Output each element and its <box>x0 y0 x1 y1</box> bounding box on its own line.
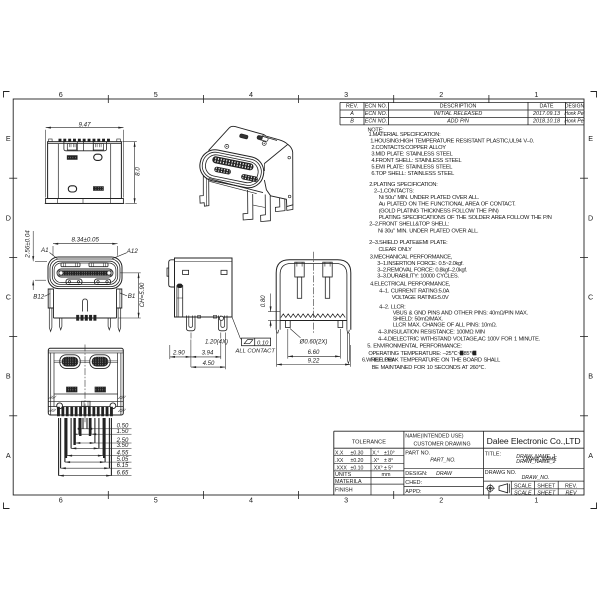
svg-text:5. ENVIRONMENTAL PERFORMANCE: 5. ENVIRONMENTAL PERFORMANCE: <box>367 344 462 350</box>
svg-text:3: 3 <box>344 90 348 99</box>
svg-text:A: A <box>588 451 593 460</box>
svg-text:ECN NO.: ECN NO. <box>365 119 387 125</box>
svg-text:B: B <box>350 119 354 125</box>
svg-text:DRAW_NAME_2: DRAW_NAME_2 <box>516 459 556 465</box>
svg-text:± 8°: ± 8° <box>384 458 393 464</box>
svg-text:.XX: .XX <box>335 458 344 464</box>
svg-text:1: 1 <box>534 496 538 505</box>
svg-text:E: E <box>588 134 593 143</box>
svg-text:INITIAL RELEASED: INITIAL RELEASED <box>434 111 483 117</box>
svg-text:SCALE: SCALE <box>514 483 532 489</box>
svg-text:3.MID PLATE: STAINLESS STEE: 3.MID PLATE: STAINLESS STEEL <box>371 151 452 157</box>
svg-text:4–4.DIELECTRIC WITHSTAND VOL: 4–4.DIELECTRIC WITHSTAND VOLTAGE,AC 100V… <box>378 336 541 342</box>
svg-text:Ni 30u" MIN. UNDER PLATED: Ni 30u" MIN. UNDER PLATED OVER ALL. <box>378 228 479 234</box>
svg-text:TOLERANCE: TOLERANCE <box>352 439 386 445</box>
svg-text:REFLOW: REFLOW <box>371 357 394 363</box>
svg-text:0.10: 0.10 <box>257 340 269 346</box>
svg-text:2–1.CONTACTS:: 2–1.CONTACTS: <box>374 188 414 194</box>
svg-text:X.°: X.° <box>372 450 379 456</box>
svg-text:.XX°: .XX° <box>372 466 382 472</box>
svg-text:C: C <box>6 293 11 302</box>
svg-text:1.MATERIAL SPECIFICATION:: 1.MATERIAL SPECIFICATION: <box>369 132 442 138</box>
svg-text:TITLE:: TITLE: <box>485 451 501 457</box>
svg-text:9.22: 9.22 <box>308 358 320 364</box>
svg-text:Honk Pei: Honk Pei <box>564 119 585 125</box>
svg-text:±0.10: ±0.10 <box>351 466 364 472</box>
svg-text:2: 2 <box>439 496 443 505</box>
svg-text:B1: B1 <box>128 293 136 300</box>
svg-text:DATE: DATE <box>540 104 554 110</box>
svg-text:3: 3 <box>344 496 348 505</box>
svg-text:5: 5 <box>154 90 158 99</box>
svg-text:CHED:: CHED: <box>405 480 422 486</box>
svg-text:UNITS: UNITS <box>335 472 352 478</box>
svg-text:SHEET: SHEET <box>537 483 556 489</box>
svg-text:A1: A1 <box>40 247 49 254</box>
svg-text:Ni 50u" MIN. UNDER PLATED: Ni 50u" MIN. UNDER PLATED OVER ALL. <box>379 195 480 201</box>
svg-text:SCALE: SCALE <box>514 490 532 496</box>
svg-text:B: B <box>588 372 593 381</box>
svg-text:4.ELECTRICAL PERFORMANCE,: 4.ELECTRICAL PERFORMANCE, <box>370 282 451 288</box>
svg-text:±10°: ±10° <box>384 450 395 456</box>
svg-text:3.MECHANICAL PERFORMANCE,: 3.MECHANICAL PERFORMANCE, <box>370 254 453 260</box>
svg-text:6: 6 <box>59 90 63 99</box>
svg-text:BE MAINTAINED FOR 10 SECON: BE MAINTAINED FOR 10 SECONDS AT 260℃. <box>372 365 487 371</box>
svg-text:2.PLATING SPECIFICATION:: 2.PLATING SPECIFICATION: <box>369 182 438 188</box>
svg-text:6.TOP SHELL: STAINLESS STEE: 6.TOP SHELL: STAINLESS STEEL <box>371 171 454 177</box>
svg-text:Honk Pei: Honk Pei <box>564 111 585 117</box>
svg-text:C: C <box>588 293 593 302</box>
svg-text:DESIGN:: DESIGN: <box>405 471 427 477</box>
svg-text:PLATING SPECIFICATIONS OF T: PLATING SPECIFICATIONS OF THE SOLDER ARE… <box>379 215 552 221</box>
svg-text:5.EMI PLATE: STAINLESS STEE: 5.EMI PLATE: STAINLESS STEEL <box>371 164 452 170</box>
svg-text:±0.20: ±0.20 <box>351 458 364 464</box>
svg-text:2.90: 2.90 <box>172 351 185 357</box>
svg-text:6.60: 6.60 <box>308 350 320 356</box>
svg-text:VBUS & GND PINS AND OTHER: VBUS & GND PINS AND OTHER PINS: 40mΩ/PIN… <box>393 311 529 317</box>
svg-text:REV.: REV. <box>346 104 358 110</box>
svg-text:2018.10.18: 2018.10.18 <box>532 119 560 125</box>
svg-text:DRAWG NO.: DRAWG NO. <box>485 470 517 476</box>
svg-text:X.X: X.X <box>335 450 344 456</box>
svg-text:4.50: 4.50 <box>203 361 215 367</box>
svg-text:9.47: 9.47 <box>78 121 91 128</box>
svg-text:Ø0.60(2X): Ø0.60(2X) <box>299 339 328 345</box>
svg-text:PART_NO.: PART_NO. <box>430 458 455 464</box>
svg-text:± 5°: ± 5° <box>384 466 393 472</box>
svg-text:CH=5.90: CH=5.90 <box>139 282 146 307</box>
svg-text:DESCRIPTION: DESCRIPTION <box>440 104 477 110</box>
svg-text:1: 1 <box>534 90 538 99</box>
svg-text:2.CONTACTS:COPPER ALLOY: 2.CONTACTS:COPPER ALLOY <box>371 145 446 151</box>
svg-text:ECN NO.: ECN NO. <box>365 111 387 117</box>
svg-text:DRAW: DRAW <box>436 471 453 477</box>
svg-text:1.20(4X): 1.20(4X) <box>205 339 228 345</box>
svg-text:PART NO.: PART NO. <box>405 451 430 457</box>
svg-text:CLEAR ONLY: CLEAR ONLY <box>379 247 413 253</box>
svg-text:4–2. LLCR:: 4–2. LLCR: <box>379 304 406 310</box>
svg-text:E: E <box>6 134 11 143</box>
svg-text:4–1. CURRENT RATING:5.0A: 4–1. CURRENT RATING:5.0A <box>379 288 450 294</box>
svg-text:0.80: 0.80 <box>261 295 267 307</box>
svg-text:DRAW_NO.: DRAW_NO. <box>522 475 550 481</box>
svg-text:2.56±0.04: 2.56±0.04 <box>24 230 31 259</box>
svg-text:VOLTAGE RATING:5.0V: VOLTAGE RATING:5.0V <box>392 295 449 301</box>
svg-text:2017.09.13: 2017.09.13 <box>532 111 560 117</box>
svg-text:4.FRONT SHELL: STAINLESS ST: 4.FRONT SHELL: STAINLESS STEEL <box>371 158 461 164</box>
svg-text:NAME(INTENDED USE): NAME(INTENDED USE) <box>405 433 464 439</box>
svg-text:A12: A12 <box>126 248 139 255</box>
svg-text:A: A <box>6 451 11 460</box>
svg-text:CUSTOMER DRAWING: CUSTOMER DRAWING <box>414 442 471 448</box>
svg-text:SHEET: SHEET <box>537 490 556 496</box>
svg-text:4: 4 <box>249 496 253 505</box>
svg-text:FINISH: FINISH <box>335 488 353 494</box>
svg-text:ADD P/N: ADD P/N <box>446 119 469 125</box>
svg-text:APPD:: APPD: <box>405 489 421 495</box>
svg-text:.XXX: .XXX <box>335 466 347 472</box>
svg-text:Dalee Electronic Co.,LTD: Dalee Electronic Co.,LTD <box>487 436 581 446</box>
svg-text:2–3.SHIELD PLATE&EMI PLATE:: 2–3.SHIELD PLATE&EMI PLATE: <box>369 240 448 246</box>
svg-text:8.34±0.05: 8.34±0.05 <box>71 237 99 244</box>
svg-text:2–2.FRONT SHELL&TOP SHELL:: 2–2.FRONT SHELL&TOP SHELL: <box>369 222 450 228</box>
svg-text:1.HOUSING:HIGH TEMPERATURE R: 1.HOUSING:HIGH TEMPERATURE RESISTANT PLA… <box>370 138 534 144</box>
svg-text:(GOLD PLATING THICKNESS FOL: (GOLD PLATING THICKNESS FOLLOW THE P/N) <box>379 208 499 214</box>
svg-text:4: 4 <box>249 90 253 99</box>
svg-text:3.94: 3.94 <box>202 351 214 357</box>
svg-text:D: D <box>588 213 593 222</box>
svg-text:4–3.INSULATION RESISTANCE: 1: 4–3.INSULATION RESISTANCE: 100MΩ MIN <box>378 330 485 336</box>
svg-text:2: 2 <box>439 90 443 99</box>
svg-text:Au PLATED ON THE FUNCTIONA: Au PLATED ON THE FUNCTIONAL AREA OF CONT… <box>379 202 516 208</box>
svg-text:B: B <box>6 372 11 381</box>
svg-text:mm: mm <box>382 472 391 478</box>
svg-text:8.0: 8.0 <box>134 167 141 176</box>
svg-text:±0.30: ±0.30 <box>351 450 364 456</box>
svg-text:LLCR MAX. CHANGE OF ALL P: LLCR MAX. CHANGE OF ALL PINS: 10mΩ. <box>393 323 498 329</box>
svg-text:5: 5 <box>154 496 158 505</box>
svg-text:B12: B12 <box>33 293 45 300</box>
svg-text:MATERILA: MATERILA <box>335 479 362 485</box>
svg-text:6: 6 <box>59 496 63 505</box>
svg-text:D: D <box>6 213 11 222</box>
svg-text:ALL CONTACT: ALL CONTACT <box>235 348 276 354</box>
svg-text:3–1.INSERTION FORCE: 0.5~2.0: 3–1.INSERTION FORCE: 0.5~2.0kgf. <box>377 261 464 267</box>
svg-text:ECN NO.: ECN NO. <box>365 104 387 110</box>
svg-text:.X°: .X° <box>372 458 379 464</box>
svg-text:REV: REV <box>565 490 577 496</box>
svg-text:DESIGN: DESIGN <box>565 104 585 110</box>
svg-text:REV.: REV. <box>565 483 577 489</box>
svg-text:3–3.DURABILITY: 10000 CYCLES: 3–3.DURABILITY: 10000 CYCLES. <box>377 273 459 279</box>
svg-text:A: A <box>349 111 354 117</box>
